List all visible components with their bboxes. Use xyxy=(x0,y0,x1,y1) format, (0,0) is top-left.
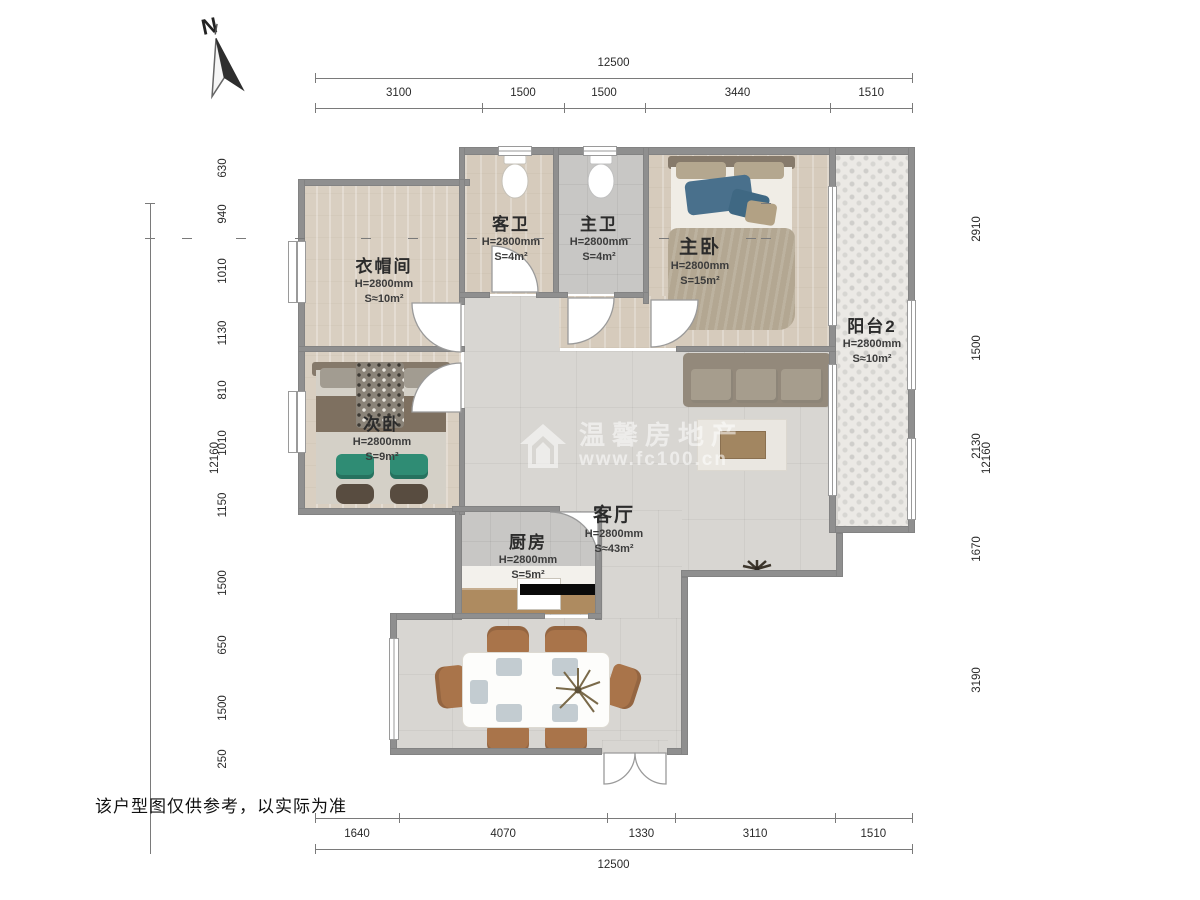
dim-tick xyxy=(761,203,771,204)
dark-pillow xyxy=(336,484,374,504)
wall xyxy=(588,613,602,619)
dim-label: 1500 xyxy=(971,335,983,361)
room-area: S≈43m² xyxy=(585,542,643,557)
window xyxy=(288,241,306,303)
sofa-seat xyxy=(736,369,778,403)
dim-tick xyxy=(746,238,756,239)
dim-label: 1010 xyxy=(217,430,229,456)
place-setting xyxy=(496,658,522,676)
dim-label: 250 xyxy=(217,749,229,768)
dim-label: 2910 xyxy=(971,216,983,242)
coffee-table xyxy=(720,431,766,459)
dim-tick xyxy=(912,813,913,823)
dim-tick xyxy=(182,238,192,239)
dim-tick xyxy=(761,238,771,239)
room-area: S=9m² xyxy=(353,450,411,465)
room-name: 主卫 xyxy=(570,210,628,235)
dim-tick xyxy=(236,238,246,239)
dim-label: 1670 xyxy=(971,536,983,562)
room-label-living-room: 客厅 H=2800mm S≈43m² xyxy=(585,500,643,557)
wall xyxy=(452,613,545,619)
bed-pillow xyxy=(404,368,442,388)
dim-tick xyxy=(675,813,676,823)
room-name: 厨房 xyxy=(499,528,557,553)
bed-pillow xyxy=(320,368,358,388)
wall xyxy=(459,179,465,305)
bed-pillow xyxy=(676,162,726,179)
master-entry-nook-floor xyxy=(559,296,679,348)
dim-tick xyxy=(659,238,669,239)
entry-door-left xyxy=(604,753,635,784)
room-label-master-bath: 主卫 H=2800mm S=4m² xyxy=(570,210,628,265)
dim-tick xyxy=(835,813,836,823)
place-setting xyxy=(496,704,522,722)
dim-label: 1130 xyxy=(217,321,229,346)
room-area: S=5m² xyxy=(499,568,557,583)
room-height: H=2800mm xyxy=(843,337,901,352)
dim-label: 2130 xyxy=(971,433,983,459)
toilet-icon xyxy=(583,155,619,201)
dim-tick xyxy=(145,238,155,239)
dim-seg-line-top xyxy=(315,108,912,109)
dim-label: 1330 xyxy=(629,828,655,840)
entry-door-right xyxy=(635,753,666,784)
table-centerpiece-icon xyxy=(550,662,606,718)
dim-tick xyxy=(621,238,631,239)
dim-tick xyxy=(315,103,316,113)
room-name: 次卧 xyxy=(353,410,411,435)
dim-label: 1510 xyxy=(858,87,884,99)
room-area: S=15m² xyxy=(671,274,729,289)
room-area: S=4m² xyxy=(482,250,540,265)
room-name: 阳台2 xyxy=(843,312,901,337)
dim-label: 1500 xyxy=(217,695,229,721)
dim-label: 630 xyxy=(217,159,229,178)
dim-tick xyxy=(145,203,155,204)
room-height: H=2800mm xyxy=(570,235,628,250)
wall xyxy=(455,506,462,620)
entry-threshold xyxy=(602,740,668,754)
dim-label: 1500 xyxy=(591,87,617,99)
wall xyxy=(643,147,649,298)
room-height: H=2800mm xyxy=(355,277,413,292)
dim-total-line-bottom xyxy=(315,849,912,850)
room-label-kitchen: 厨房 H=2800mm S=5m² xyxy=(499,528,557,583)
dim-tick xyxy=(607,813,608,823)
wall xyxy=(829,526,915,533)
wall xyxy=(298,346,465,352)
window xyxy=(288,391,306,453)
dim-label: 3110 xyxy=(743,828,768,840)
dim-label: 1510 xyxy=(861,828,887,840)
window xyxy=(583,146,617,156)
dim-label: 12500 xyxy=(598,57,630,69)
dim-tick xyxy=(912,103,913,113)
room-name: 客厅 xyxy=(585,500,643,527)
dim-tick xyxy=(408,238,418,239)
room-height: H=2800mm xyxy=(499,553,557,568)
room-label-balcony2: 阳台2 H=2800mm S≈10m² xyxy=(843,312,901,367)
wall xyxy=(298,179,470,186)
dim-tick xyxy=(534,238,544,239)
room-label-second-bedroom: 次卧 H=2800mm S=9m² xyxy=(353,410,411,465)
room-area: S≈10m² xyxy=(843,352,901,367)
dim-label: 1150 xyxy=(217,493,229,518)
wall xyxy=(459,292,490,298)
room-height: H=2800mm xyxy=(585,527,643,542)
dim-label: 1640 xyxy=(344,828,370,840)
room-name: 衣帽间 xyxy=(355,252,413,277)
compass-needle-icon xyxy=(181,7,258,108)
dim-tick xyxy=(361,238,371,239)
room-height: H=2800mm xyxy=(482,235,540,250)
dark-pillow xyxy=(390,484,428,504)
dim-tick xyxy=(399,813,400,823)
dim-tick xyxy=(564,103,565,113)
wall xyxy=(836,533,843,577)
dim-tick xyxy=(482,103,483,113)
room-name: 客卫 xyxy=(482,210,540,235)
window xyxy=(907,438,916,520)
dim-label: 810 xyxy=(217,380,229,399)
balcony-sliding-door xyxy=(828,364,837,496)
dim-label: 12500 xyxy=(598,859,630,871)
dim-label: 3100 xyxy=(386,87,412,99)
sofa xyxy=(683,353,831,407)
dim-tick xyxy=(645,103,646,113)
window xyxy=(907,300,916,390)
north-arrow: N xyxy=(181,7,258,108)
dim-label: 3190 xyxy=(971,667,983,693)
dim-label: 940 xyxy=(217,204,229,223)
dim-tick xyxy=(830,103,831,113)
dim-seg-line-bottom xyxy=(315,818,912,819)
wall xyxy=(452,506,560,512)
room-height: H=2800mm xyxy=(353,435,411,450)
wall xyxy=(681,570,843,577)
disclaimer-text: 该户型图仅供参考，以实际为准 xyxy=(95,792,347,817)
dim-label: 1500 xyxy=(217,570,229,596)
sofa-seat xyxy=(781,369,823,403)
window xyxy=(828,186,837,326)
dim-tick xyxy=(295,238,305,239)
wall xyxy=(643,292,649,304)
floorplan-page: N xyxy=(0,0,1200,900)
room-height: H=2800mm xyxy=(671,259,729,274)
room-label-master-bedroom: 主卧 H=2800mm S=15m² xyxy=(671,232,729,289)
place-setting xyxy=(470,680,488,704)
room-area: S≈10m² xyxy=(355,292,413,307)
dim-label: 1010 xyxy=(217,258,229,284)
dim-tick xyxy=(912,73,913,83)
dim-tick xyxy=(315,73,316,83)
wall xyxy=(553,147,559,298)
wall xyxy=(390,748,602,755)
wall xyxy=(681,577,688,755)
room-label-cloakroom: 衣帽间 H=2800mm S≈10m² xyxy=(355,252,413,307)
wall xyxy=(298,508,462,515)
toilet-icon xyxy=(497,155,533,201)
wall xyxy=(676,346,836,352)
dim-label: 4070 xyxy=(490,828,516,840)
dim-label: 3440 xyxy=(725,87,751,99)
wall xyxy=(536,292,568,298)
dim-label: 650 xyxy=(217,636,229,655)
redaction-bar xyxy=(520,584,602,595)
dim-label: 1500 xyxy=(510,87,536,99)
wall xyxy=(459,408,465,515)
dim-tick xyxy=(912,844,913,854)
dim-tick xyxy=(467,238,477,239)
room-label-guest-bath: 客卫 H=2800mm S=4m² xyxy=(482,210,540,265)
dim-seg-line-left xyxy=(150,238,151,854)
sofa-seat xyxy=(691,369,733,403)
dim-tick xyxy=(315,844,316,854)
dim-total-line-top xyxy=(315,78,912,79)
window xyxy=(389,638,399,740)
room-area: S=4m² xyxy=(570,250,628,265)
window xyxy=(498,146,532,156)
room-name: 主卧 xyxy=(671,232,729,259)
